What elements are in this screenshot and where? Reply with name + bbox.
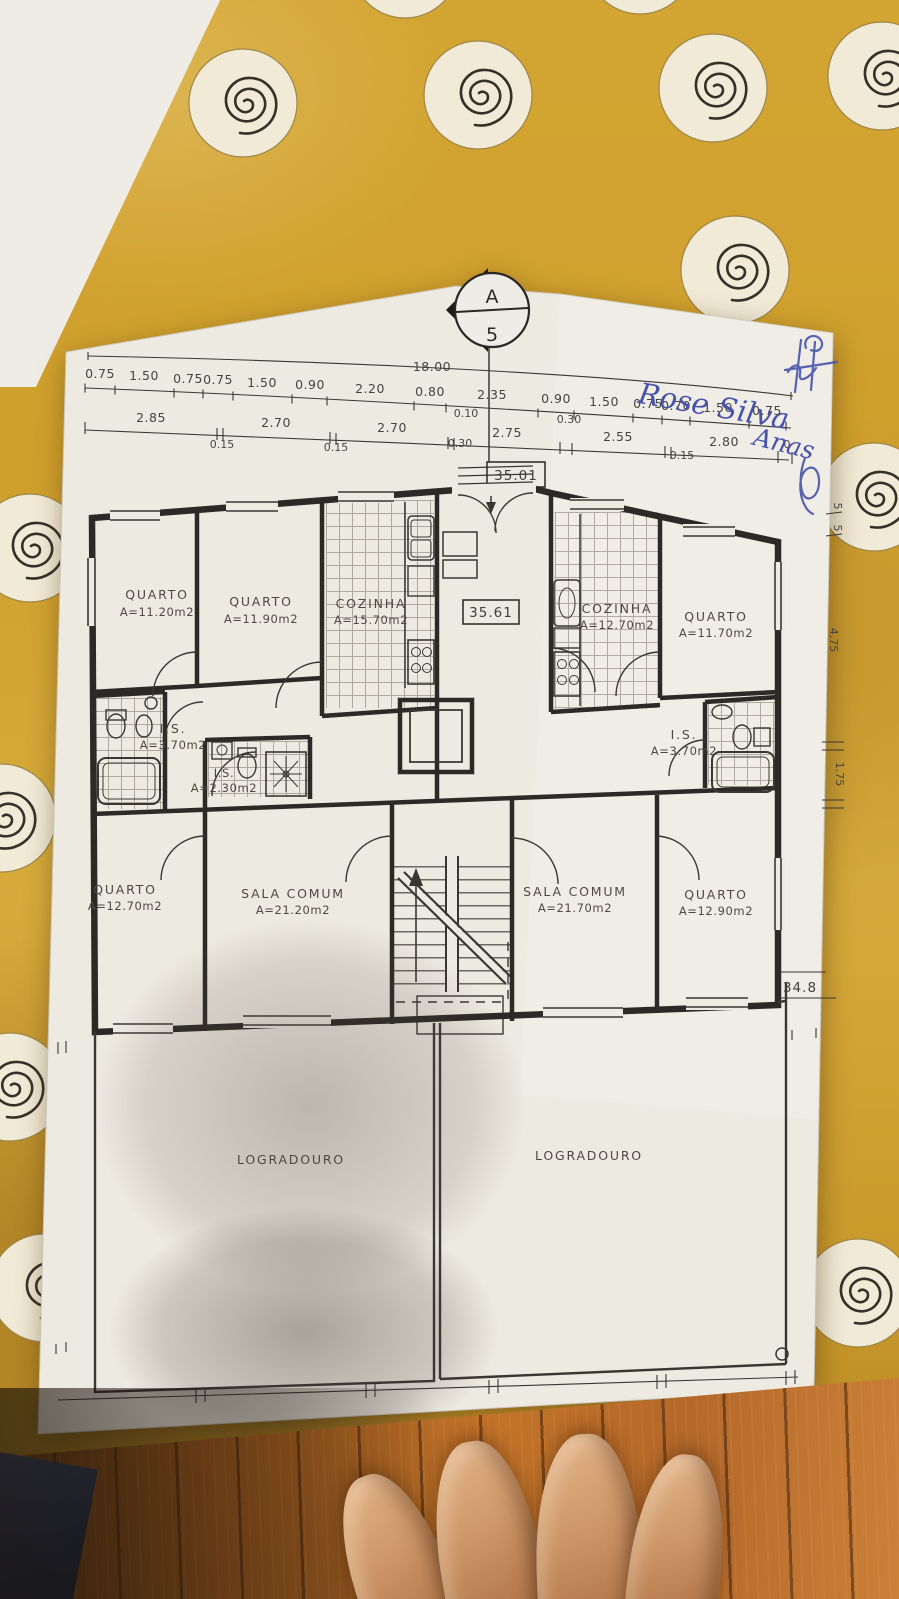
room-label-is-right: I.S. xyxy=(671,727,698,742)
room-label-logradouro-left: LOGRADOURO xyxy=(237,1152,345,1167)
right-dim: 1.75 xyxy=(833,762,846,787)
room-area: A=15.70m2 xyxy=(334,613,408,627)
photo-of-floor-plan: A 5 18.00 0.75 1.50 0.75 0.75 1.50 0.90 … xyxy=(0,0,899,1599)
room-area: A=21.70m2 xyxy=(538,901,612,915)
room-area: A=21.20m2 xyxy=(256,903,330,917)
dim: 1.50 xyxy=(129,368,159,383)
dim: 0.90 xyxy=(541,391,571,406)
room-label-is-2: I.S. xyxy=(214,766,234,780)
dim: 2.80 xyxy=(709,434,739,449)
room-area: A=2.30m2 xyxy=(191,781,257,795)
dim: 1.50 xyxy=(247,375,277,390)
level-label-35-61: 35.61 xyxy=(469,605,513,621)
floor-plan-paper: A 5 18.00 0.75 1.50 0.75 0.75 1.50 0.90 … xyxy=(0,0,899,1599)
dim: 2.85 xyxy=(136,410,166,425)
dim: 2.35 xyxy=(477,387,507,402)
room-area: A=3.70m2 xyxy=(651,744,717,758)
dim-total: 18.00 xyxy=(413,359,451,374)
room-area: A=11.90m2 xyxy=(224,612,298,626)
room-area: A=11.20m2 xyxy=(120,605,194,619)
room-label-is-left: I.S. xyxy=(160,721,187,736)
room-label-cozinha-left: COZINHA xyxy=(336,596,407,611)
right-dim: 5 xyxy=(831,525,844,532)
dim: 2.20 xyxy=(355,381,385,396)
dim: 0.75 xyxy=(203,372,233,387)
room-area: A=12.90m2 xyxy=(679,904,753,918)
room-area: A=11.70m2 xyxy=(679,626,753,640)
room-label-quarto-right: QUARTO xyxy=(684,609,748,624)
dim-small: 0.15 xyxy=(324,441,349,454)
room-label-cozinha-right: COZINHA xyxy=(582,601,653,616)
marker-letter: A xyxy=(486,286,499,308)
room-label-quarto-br: QUARTO xyxy=(684,887,748,902)
dim: 2.70 xyxy=(261,415,291,430)
room-area: A=3.70m2 xyxy=(140,738,206,752)
right-dim: 4.75 xyxy=(827,628,840,653)
dim: 2.70 xyxy=(377,420,407,435)
dim-small: 0.10 xyxy=(454,407,479,420)
room-area: A=12.70m2 xyxy=(580,618,654,632)
dim: 0.80 xyxy=(415,384,445,399)
dim-small: 0.15 xyxy=(210,438,235,451)
room-area: A=12.70m2 xyxy=(88,899,162,913)
right-dim: 5 xyxy=(831,503,844,510)
room-label-sala-left: SALA COMUM xyxy=(241,886,345,901)
dim: 0.75 xyxy=(173,371,203,386)
dim: 0.90 xyxy=(295,377,325,392)
dim: 2.75 xyxy=(492,425,522,440)
right-note-34-8: 34.8 xyxy=(783,980,817,996)
dim: 2.55 xyxy=(603,429,633,444)
dim-small: 0.15 xyxy=(670,449,695,462)
room-label-quarto-2: QUARTO xyxy=(229,594,293,609)
marker-number: 5 xyxy=(486,324,498,346)
dim: 0.75 xyxy=(85,366,115,381)
dim: 1.50 xyxy=(589,394,619,409)
room-label-sala-right: SALA COMUM xyxy=(523,884,627,899)
dim-small: 0.30 xyxy=(448,437,473,450)
room-label-quarto-1: QUARTO xyxy=(125,587,189,602)
room-label-logradouro-right: LOGRADOURO xyxy=(535,1148,643,1163)
room-label-quarto-bl: QUARTO xyxy=(93,882,157,897)
dim-small: 0.30 xyxy=(557,413,582,426)
